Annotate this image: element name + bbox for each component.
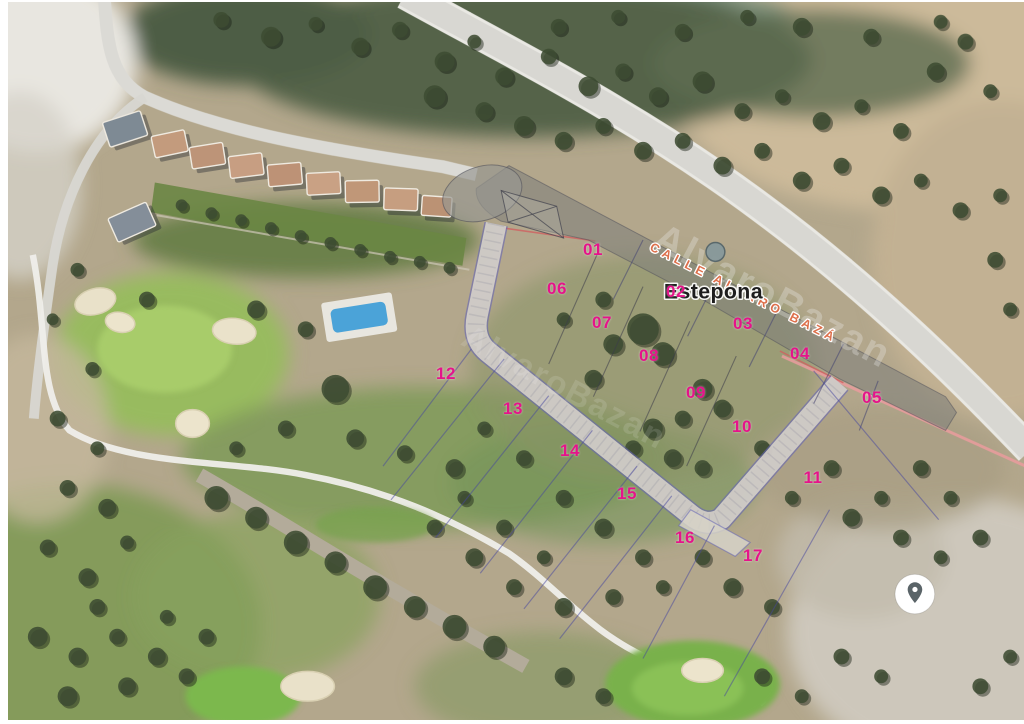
map-pin-icon: [895, 574, 935, 614]
satellite-rendering: AlvaroBazan AlvaroBazan CALLE ALVARO BAZ…: [8, 2, 1024, 720]
brochure-page: AlvaroBazan AlvaroBazan CALLE ALVARO BAZ…: [0, 0, 1024, 724]
city-label: Estepona: [664, 280, 763, 304]
city-marker-dot: [706, 242, 725, 261]
aerial-map-image: AlvaroBazan AlvaroBazan CALLE ALVARO BAZ…: [8, 2, 1024, 720]
